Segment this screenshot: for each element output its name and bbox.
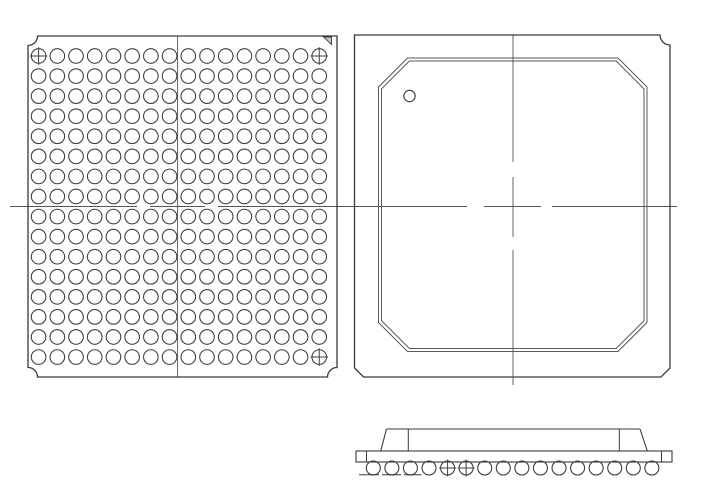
bga-ball: [200, 350, 215, 365]
bga-ball: [218, 69, 233, 84]
bga-ball: [218, 49, 233, 64]
bga-ball: [31, 89, 46, 104]
bga-ball: [31, 149, 46, 164]
solder-ball: [366, 461, 380, 475]
bga-ball: [31, 350, 46, 365]
bga-ball: [200, 129, 215, 144]
bga-ball: [256, 310, 271, 325]
bga-ball: [218, 310, 233, 325]
bga-ball: [256, 69, 271, 84]
bga-ball: [312, 189, 327, 204]
bga-ball: [181, 149, 196, 164]
bga-ball: [87, 290, 102, 305]
bga-ball: [144, 350, 159, 365]
bga-ball: [31, 249, 46, 264]
bga-ball: [275, 129, 290, 144]
bga-ball: [181, 249, 196, 264]
bga-ball: [293, 269, 308, 284]
bga-ball: [181, 89, 196, 104]
bga-ball: [69, 209, 84, 224]
bga-ball: [181, 129, 196, 144]
bga-ball: [162, 269, 177, 284]
bga-ball: [293, 69, 308, 84]
bga-ball: [275, 189, 290, 204]
bga-ball: [256, 109, 271, 124]
bga-ball: [106, 209, 121, 224]
bga-ball: [256, 330, 271, 345]
bga-ball: [69, 49, 84, 64]
bga-ball: [312, 209, 327, 224]
bga-ball: [200, 69, 215, 84]
bga-ball: [144, 229, 159, 244]
bga-ball: [237, 290, 252, 305]
bga-ball: [144, 189, 159, 204]
bga-ball: [312, 109, 327, 124]
bga-ball: [31, 269, 46, 284]
bga-ball: [87, 249, 102, 264]
bga-ball: [125, 269, 140, 284]
bga-ball: [50, 69, 65, 84]
bga-ball: [275, 109, 290, 124]
bga-ball: [106, 89, 121, 104]
bga-ball: [50, 209, 65, 224]
package-top-view-body: [355, 35, 671, 385]
bga-ball: [256, 189, 271, 204]
bga-ball: [275, 209, 290, 224]
bga-ball: [293, 310, 308, 325]
bga-ball: [50, 350, 65, 365]
bga-ball: [162, 129, 177, 144]
bga-ball: [144, 109, 159, 124]
bga-ball: [200, 149, 215, 164]
bga-ball: [237, 109, 252, 124]
bga-ball: [218, 169, 233, 184]
bga-ball: [106, 350, 121, 365]
bga-ball: [162, 169, 177, 184]
bga-ball: [125, 69, 140, 84]
bga-ball: [69, 189, 84, 204]
bga-ball: [31, 189, 46, 204]
bga-ball: [218, 249, 233, 264]
bga-ball: [275, 269, 290, 284]
bga-ball: [144, 209, 159, 224]
bga-ball: [87, 109, 102, 124]
bga-ball: [312, 290, 327, 305]
bga-ball: [312, 69, 327, 84]
bga-ball: [125, 290, 140, 305]
bga-ball: [87, 269, 102, 284]
bga-ball: [181, 290, 196, 305]
bga-ball: [106, 310, 121, 325]
bga-ball: [31, 129, 46, 144]
bga-ball: [87, 169, 102, 184]
bga-ball: [256, 290, 271, 305]
bga-ball: [31, 229, 46, 244]
bga-ball: [87, 229, 102, 244]
bga-ball: [106, 249, 121, 264]
bga-ball: [125, 189, 140, 204]
bga-ball: [200, 89, 215, 104]
bga-ball: [218, 149, 233, 164]
bga-ball: [312, 129, 327, 144]
solder-ball: [589, 461, 603, 475]
solder-ball: [403, 461, 417, 475]
bga-ball: [181, 189, 196, 204]
bga-ball: [144, 269, 159, 284]
bga-ball: [87, 209, 102, 224]
bga-ball: [312, 330, 327, 345]
bga-ball: [125, 229, 140, 244]
solder-ball: [645, 461, 659, 475]
bga-ball: [144, 290, 159, 305]
bga-ball: [50, 149, 65, 164]
bga-ball: [69, 109, 84, 124]
bga-ball: [237, 89, 252, 104]
bga-ball: [87, 310, 102, 325]
bga-ball: [162, 310, 177, 325]
bga-ball: [69, 69, 84, 84]
bga-ball: [256, 350, 271, 365]
bga-ball: [200, 229, 215, 244]
bga-ball: [312, 229, 327, 244]
bga-ball: [106, 129, 121, 144]
bga-ball: [237, 149, 252, 164]
solder-ball: [608, 461, 622, 475]
bga-ball: [256, 209, 271, 224]
bga-ball: [125, 330, 140, 345]
bga-ball: [218, 189, 233, 204]
bga-ball: [31, 169, 46, 184]
bga-ball: [275, 149, 290, 164]
bga-ball: [237, 310, 252, 325]
bga-ball: [69, 269, 84, 284]
bga-ball: [218, 209, 233, 224]
bga-ball: [125, 249, 140, 264]
bga-ball: [312, 310, 327, 325]
bga-ball: [293, 89, 308, 104]
bga-ball: [181, 310, 196, 325]
bga-ball: [31, 290, 46, 305]
bga-ball: [144, 149, 159, 164]
bga-ball: [125, 149, 140, 164]
bga-ball: [162, 209, 177, 224]
bga-ball: [181, 169, 196, 184]
bga-ball: [69, 89, 84, 104]
bga-ball: [256, 49, 271, 64]
bga-ball: [144, 129, 159, 144]
bga-ball: [181, 330, 196, 345]
bga-ball: [162, 109, 177, 124]
bga-ball: [106, 149, 121, 164]
solder-ball: [626, 461, 640, 475]
bga-ball: [50, 189, 65, 204]
bga-ball: [200, 290, 215, 305]
bga-ball: [275, 229, 290, 244]
bga-ball: [312, 89, 327, 104]
bga-ball: [106, 49, 121, 64]
bga-ball: [87, 189, 102, 204]
bga-ball: [162, 49, 177, 64]
bga-ball: [31, 330, 46, 345]
bga-ball: [50, 129, 65, 144]
bga-ball: [293, 109, 308, 124]
bga-ball: [293, 209, 308, 224]
bga-ball: [256, 169, 271, 184]
bga-ball: [181, 109, 196, 124]
bga-ball: [200, 169, 215, 184]
bga-ball: [218, 109, 233, 124]
bga-ball: [144, 49, 159, 64]
bga-ball: [237, 229, 252, 244]
bga-ball: [50, 310, 65, 325]
bga-ball: [275, 169, 290, 184]
bga-ball: [144, 69, 159, 84]
bga-ball: [31, 310, 46, 325]
bga-ball: [237, 189, 252, 204]
bga-ball: [275, 310, 290, 325]
bga-ball: [200, 330, 215, 345]
bga-ball: [87, 149, 102, 164]
bga-ball: [275, 290, 290, 305]
bga-ball: [293, 49, 308, 64]
bga-ball: [50, 249, 65, 264]
bga-ball: [237, 69, 252, 84]
top-view-outline: [355, 35, 671, 377]
bga-ball: [50, 290, 65, 305]
bga-ball: [125, 169, 140, 184]
bga-ball: [106, 169, 121, 184]
bga-ball: [218, 89, 233, 104]
solder-ball: [533, 461, 547, 475]
bga-ball: [162, 189, 177, 204]
bga-ball: [162, 89, 177, 104]
bga-ball: [218, 229, 233, 244]
solder-ball: [478, 461, 492, 475]
bga-ball: [87, 330, 102, 345]
bga-ball: [162, 149, 177, 164]
solder-ball: [571, 461, 585, 475]
bga-ball: [293, 249, 308, 264]
solder-ball: [422, 461, 436, 475]
bga-ball: [125, 129, 140, 144]
bga-ball: [293, 290, 308, 305]
bga-ball: [237, 129, 252, 144]
solder-ball: [552, 461, 566, 475]
bga-ball: [162, 290, 177, 305]
bga-ball: [256, 129, 271, 144]
bga-ball: [275, 330, 290, 345]
bga-ball: [125, 209, 140, 224]
bga-ball: [237, 209, 252, 224]
bga-ball: [144, 310, 159, 325]
bga-ball: [162, 330, 177, 345]
bga-ball: [312, 169, 327, 184]
bga-ball: [200, 189, 215, 204]
bga-ball: [106, 269, 121, 284]
bga-ball: [275, 69, 290, 84]
bga-ball: [200, 310, 215, 325]
bga-ball: [275, 249, 290, 264]
bga-ball: [106, 69, 121, 84]
bga-ball: [69, 350, 84, 365]
bga-ball: [125, 109, 140, 124]
bga-ball: [50, 229, 65, 244]
bga-ball: [162, 229, 177, 244]
bga-ball: [237, 49, 252, 64]
bga-ball: [293, 330, 308, 345]
bga-ball: [87, 49, 102, 64]
bga-ball: [144, 330, 159, 345]
bga-ball: [200, 209, 215, 224]
bga-ball: [237, 249, 252, 264]
bga-ball: [218, 269, 233, 284]
bga-package-outline-drawing: [0, 0, 701, 495]
bga-ball: [293, 149, 308, 164]
bga-ball: [69, 249, 84, 264]
mold-left-slope: [381, 429, 387, 451]
pin1-corner-triangle-marker: [324, 37, 332, 45]
bga-ball: [218, 330, 233, 345]
bga-ball: [312, 269, 327, 284]
bga-ball: [50, 330, 65, 345]
bga-ball: [69, 330, 84, 345]
bga-ball: [293, 189, 308, 204]
bga-ball: [106, 189, 121, 204]
bga-ball: [125, 89, 140, 104]
bga-ball: [31, 209, 46, 224]
bga-ball: [256, 149, 271, 164]
bga-ball: [275, 49, 290, 64]
bga-ball: [256, 249, 271, 264]
bga-ball: [293, 350, 308, 365]
bga-ball: [106, 109, 121, 124]
bga-ball: [200, 109, 215, 124]
bga-ball: [144, 89, 159, 104]
bga-ball: [69, 169, 84, 184]
solder-ball: [515, 461, 529, 475]
bga-ball: [87, 129, 102, 144]
bga-ball: [144, 249, 159, 264]
bga-ball: [31, 109, 46, 124]
bga-ball: [87, 350, 102, 365]
package-side-profile: [356, 429, 672, 477]
bga-ball: [237, 169, 252, 184]
bga-ball: [275, 89, 290, 104]
solder-ball: [385, 461, 399, 475]
bga-ball: [125, 350, 140, 365]
bga-ball: [181, 350, 196, 365]
package-drawing-canvas: [0, 0, 701, 495]
bga-ball: [256, 229, 271, 244]
bga-ball: [69, 229, 84, 244]
bga-ball: [125, 310, 140, 325]
bga-ball: [293, 229, 308, 244]
bga-ball: [69, 149, 84, 164]
bga-ball: [125, 49, 140, 64]
bga-ball: [275, 350, 290, 365]
bga-ball: [87, 69, 102, 84]
bga-ball: [218, 350, 233, 365]
bga-ball: [200, 49, 215, 64]
bga-ball: [162, 249, 177, 264]
bga-ball: [106, 290, 121, 305]
bga-ball: [162, 350, 177, 365]
bga-ball: [144, 169, 159, 184]
bga-ball: [162, 69, 177, 84]
bga-ball: [237, 350, 252, 365]
bga-ball: [237, 269, 252, 284]
bga-ball: [293, 169, 308, 184]
bga-ball: [218, 129, 233, 144]
mold-right-slope: [640, 429, 647, 451]
bga-ball: [312, 249, 327, 264]
bga-ball: [181, 269, 196, 284]
bga-ball: [256, 269, 271, 284]
bga-ball: [312, 149, 327, 164]
bga-ball: [31, 69, 46, 84]
bga-ball: [50, 89, 65, 104]
bga-ball: [106, 229, 121, 244]
pin1-indicator-dot: [404, 90, 415, 101]
bga-ball: [181, 209, 196, 224]
bga-ball: [69, 310, 84, 325]
bga-ball: [69, 129, 84, 144]
bga-ball: [50, 49, 65, 64]
bga-ball: [181, 49, 196, 64]
bga-ball: [200, 269, 215, 284]
bga-ball: [69, 290, 84, 305]
bga-ball: [50, 109, 65, 124]
solder-ball: [496, 461, 510, 475]
bga-ball: [181, 69, 196, 84]
bga-ball: [87, 89, 102, 104]
bga-ball: [106, 330, 121, 345]
bga-ball: [200, 249, 215, 264]
bga-ball: [237, 330, 252, 345]
bga-ball: [181, 229, 196, 244]
bga-ball: [218, 290, 233, 305]
bga-ball: [256, 89, 271, 104]
bga-ball: [50, 169, 65, 184]
bga-ball: [293, 129, 308, 144]
bga-ball: [50, 269, 65, 284]
substrate-body: [356, 451, 672, 462]
